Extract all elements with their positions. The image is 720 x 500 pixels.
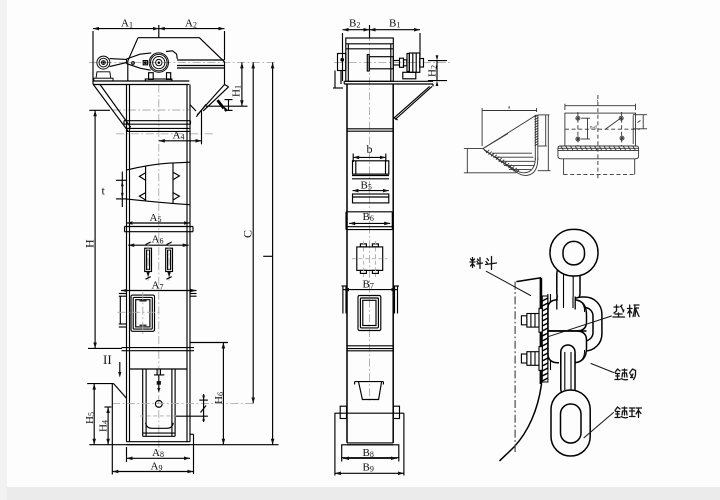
- svg-text:C: C: [241, 230, 255, 238]
- svg-text:n-d: n-d: [590, 126, 597, 131]
- svg-text:II: II: [103, 352, 112, 367]
- svg-text:b: b: [367, 142, 373, 156]
- svg-text:H: H: [83, 239, 97, 248]
